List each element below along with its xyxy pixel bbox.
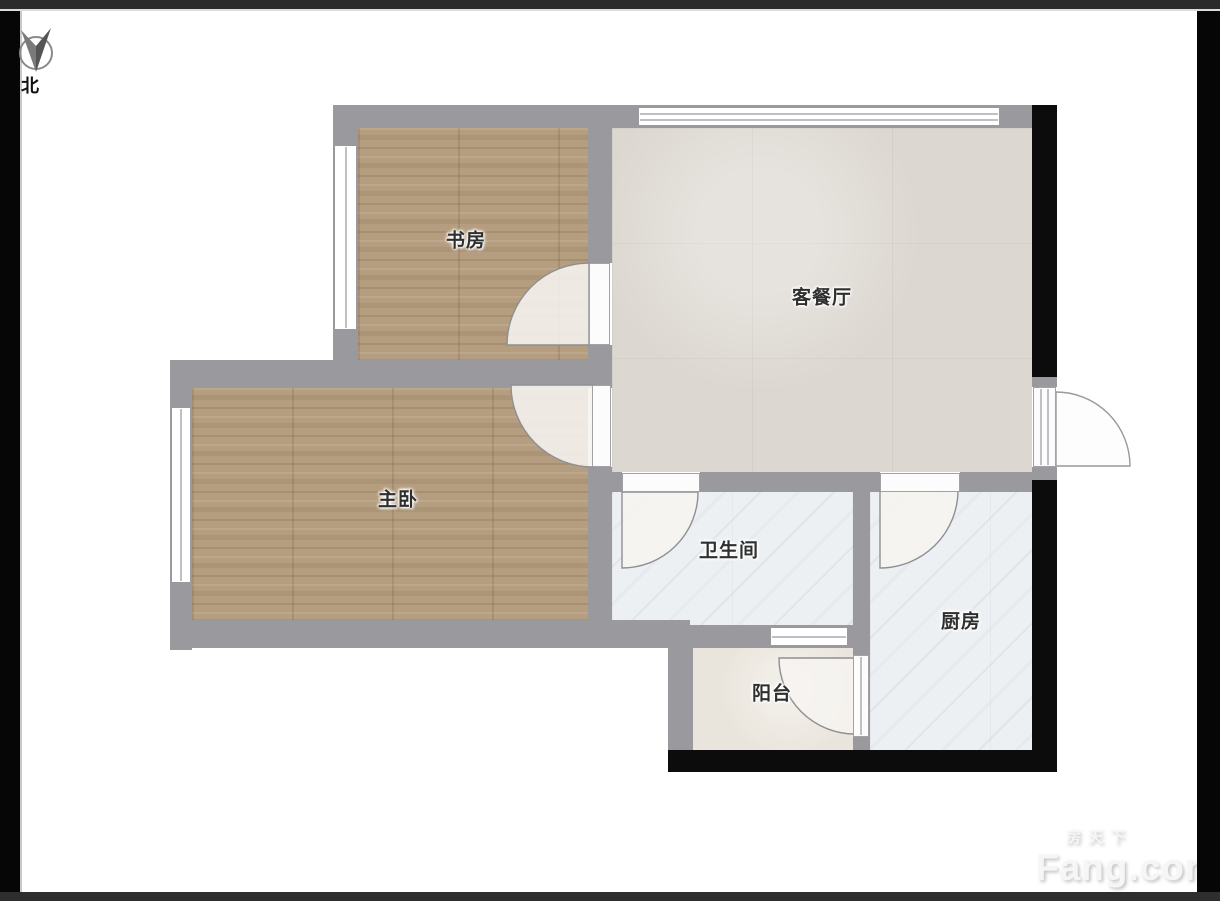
entry-door-arc xyxy=(1056,392,1130,466)
living-dining-label: 客餐厅 xyxy=(792,283,852,310)
north-label: 北 xyxy=(21,72,39,98)
entry-door-frame xyxy=(1033,387,1056,467)
letterbox-left-line xyxy=(20,0,22,901)
balcony-label: 阳台 xyxy=(752,679,792,706)
wall-study-living-lower xyxy=(588,345,612,360)
study-window xyxy=(334,145,357,330)
study-label: 书房 xyxy=(446,226,486,253)
bathroom-balcony-window xyxy=(770,627,848,646)
bathroom-door-leaf xyxy=(622,473,700,492)
window-divider xyxy=(345,147,347,328)
window-divider xyxy=(180,409,182,581)
wall-kitchen-right-black xyxy=(1032,480,1057,772)
wall-living-bottom-c xyxy=(960,472,1032,492)
fang-watermark: 房天下 Fang.com xyxy=(1036,830,1219,886)
letterbox-left-bar xyxy=(0,0,20,901)
wall-study-living-upper xyxy=(588,128,612,263)
kitchen-label: 厨房 xyxy=(941,607,981,634)
bedroom-door-leaf xyxy=(592,385,611,467)
wall-bedroom-top xyxy=(170,360,612,388)
bathroom-label: 卫生间 xyxy=(699,536,759,563)
wall-bottom-black xyxy=(668,750,1057,772)
wall-living-bottom-a xyxy=(612,472,622,492)
letterbox-bottom-bar xyxy=(0,892,1220,901)
living-top-window xyxy=(638,107,1000,126)
window-divider xyxy=(640,113,998,115)
kitchen-door-leaf xyxy=(880,473,960,492)
master-bedroom-label: 主卧 xyxy=(378,485,418,512)
letterbox-right-bar xyxy=(1197,0,1220,901)
letterbox-top-bar xyxy=(0,0,1220,9)
door-frame-line xyxy=(1047,389,1049,465)
wall-bedroom-bathroom xyxy=(588,467,612,620)
entry-door-jamb-bottom xyxy=(1032,467,1057,480)
window-divider xyxy=(640,119,998,121)
door-frame-line xyxy=(1040,389,1042,465)
bedroom-window xyxy=(171,407,191,583)
wall-living-right-black xyxy=(1032,105,1057,377)
study-door-leaf xyxy=(589,263,610,345)
letterbox-top-line xyxy=(0,9,1220,11)
floorplan-canvas: 书房 客餐厅 主卧 卫生间 厨房 阳台 北 房天下 Fang.com xyxy=(0,0,1220,901)
fang-watermark-cn: 房天下 xyxy=(1066,830,1219,845)
entry-door-jamb-top xyxy=(1032,377,1057,387)
door-frame-line xyxy=(860,657,862,735)
window-divider xyxy=(772,636,846,638)
fang-watermark-en: Fang.com xyxy=(1036,849,1219,886)
north-compass-icon xyxy=(14,26,62,74)
wall-balcony-left xyxy=(668,648,693,752)
balcony-door-frame xyxy=(853,655,869,737)
